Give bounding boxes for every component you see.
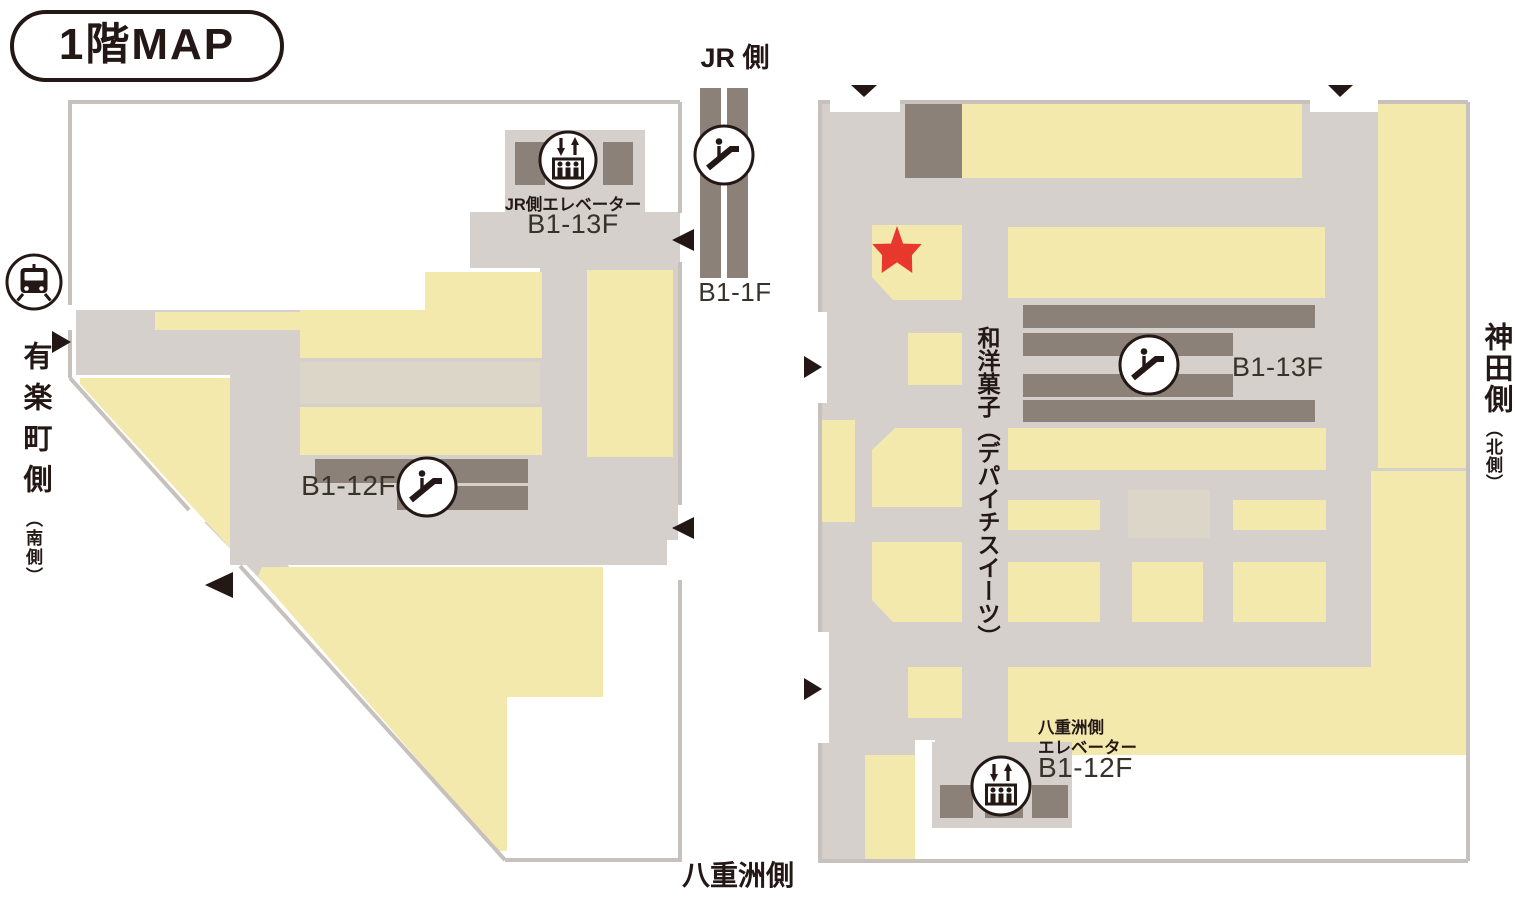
escalator-icon bbox=[695, 126, 753, 184]
escalator-bar bbox=[1023, 305, 1315, 328]
shop-block bbox=[819, 420, 855, 522]
escalator-icon bbox=[398, 458, 456, 516]
shop-block bbox=[872, 542, 962, 622]
shop-block bbox=[962, 102, 1302, 178]
right-building bbox=[804, 85, 1470, 863]
shop-block bbox=[1008, 562, 1100, 622]
elevator-shaft-block bbox=[940, 785, 973, 818]
jr-elevator-range-label: B1-13F bbox=[458, 209, 688, 240]
shop-block bbox=[1233, 500, 1326, 530]
yurakucho-side-note: （南側） bbox=[20, 510, 45, 586]
shop-block bbox=[1008, 227, 1325, 298]
shop-block-beige bbox=[1128, 490, 1210, 538]
shop-block bbox=[300, 407, 542, 455]
train-icon bbox=[7, 255, 61, 309]
entrance-notch bbox=[830, 102, 900, 112]
jr-side-label: JR 側 bbox=[655, 36, 815, 75]
shop-block bbox=[1132, 562, 1203, 622]
shop-block bbox=[1008, 428, 1326, 470]
shop-block bbox=[908, 333, 962, 385]
kanda-side-label: 神田側 bbox=[1475, 322, 1515, 415]
entrance-arrow-north-right-icon bbox=[1328, 85, 1353, 97]
elevator-icon bbox=[972, 757, 1030, 815]
shop-block bbox=[1378, 102, 1467, 468]
shop-block-beige bbox=[300, 362, 540, 404]
escalator-bar bbox=[1023, 400, 1315, 422]
sweets-zone-label: 和洋菓子（デパイチスイーツ） bbox=[970, 326, 1004, 648]
yaesu-elevator-range-label: B1-12F bbox=[1038, 752, 1133, 784]
elevator-shaft-block bbox=[603, 142, 633, 185]
yaesu-side-label: 八重洲側 bbox=[682, 854, 794, 894]
right-walkway-south-exit bbox=[818, 755, 865, 861]
escalator-icon bbox=[1120, 336, 1178, 394]
shop-block bbox=[1233, 562, 1326, 622]
elevator-shaft-block bbox=[1032, 785, 1068, 818]
elevator-icon bbox=[540, 132, 596, 188]
right-escalator-range-label: B1-13F bbox=[1232, 352, 1324, 383]
left-escalator-range-label: B1-12F bbox=[290, 470, 396, 502]
floor-map-graphic bbox=[0, 0, 1515, 913]
shop-block bbox=[908, 667, 962, 718]
shop-block-corner-triangle bbox=[80, 378, 230, 548]
entrance-notch bbox=[816, 312, 827, 403]
shop-block-south-strip bbox=[865, 755, 915, 861]
kanda-side-note: （北側） bbox=[1480, 420, 1505, 492]
page-title: 1階MAP bbox=[10, 10, 284, 82]
floor-map-stage: 1階MAP JR 側 B1-1F JR側エレベーター B1-13F B1-12F… bbox=[0, 0, 1515, 913]
service-block-dark bbox=[905, 100, 962, 178]
yurakucho-side-label: 有楽町側 bbox=[14, 341, 56, 505]
entrance-arrow-north-left-icon bbox=[851, 85, 877, 97]
shop-block bbox=[872, 428, 962, 507]
entrance-arrow-southwest-icon bbox=[205, 572, 233, 598]
jr-channel-range-label: B1-1F bbox=[655, 277, 815, 308]
shop-block bbox=[1008, 500, 1100, 530]
entrance-notch bbox=[1310, 102, 1378, 112]
